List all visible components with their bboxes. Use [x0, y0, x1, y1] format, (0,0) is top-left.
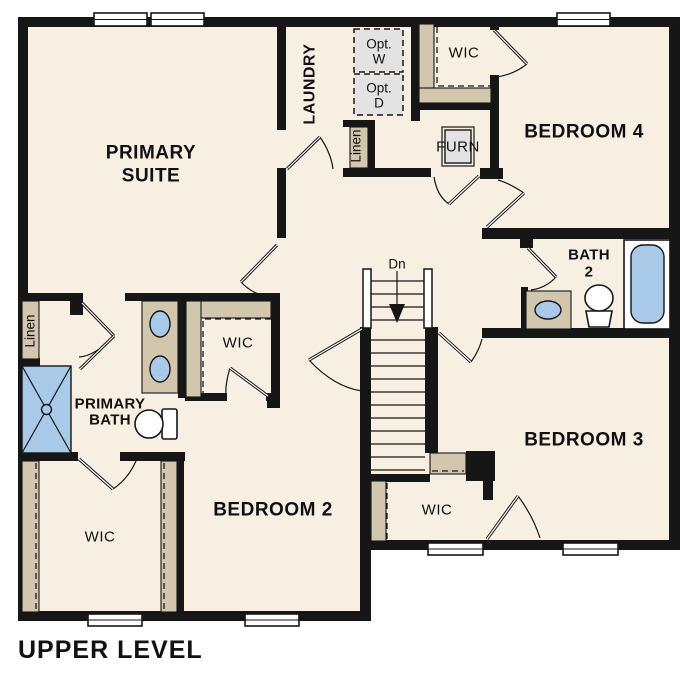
opt-dryer-label: Opt.	[366, 81, 392, 96]
stairs-direction-label: Dn	[388, 257, 405, 272]
window	[88, 614, 142, 626]
window	[245, 614, 299, 626]
closet-label-linen-hall: Linen	[349, 129, 364, 162]
room-label-bedroom-3: BEDROOM 3	[524, 430, 644, 451]
opt-dryer-label-line2: D	[374, 96, 384, 111]
room-label-primary-suite-line2: SUITE	[122, 166, 180, 187]
floor-area	[20, 20, 673, 617]
window	[94, 13, 147, 26]
window	[557, 13, 610, 26]
window	[563, 543, 618, 555]
page-title: UPPER LEVEL	[18, 636, 203, 664]
room-label-bath-2-line2: 2	[585, 264, 594, 281]
closet-label-wic-bedroom4: WIC	[449, 45, 480, 62]
window	[151, 13, 204, 26]
opt-washer-label: Opt.	[366, 37, 392, 52]
room-label-laundry: LAUNDRY	[302, 43, 319, 124]
room-label-bedroom-4: BEDROOM 4	[524, 122, 644, 143]
room-label-bedroom-2: BEDROOM 2	[213, 500, 333, 521]
floorplan-page: PRIMARY SUITE LAUNDRY Opt. W Opt. D WIC …	[0, 0, 687, 687]
bathtub-icon	[624, 240, 670, 329]
closet-label-wic-bedroom3: WIC	[422, 502, 453, 519]
room-label-primary-bath: PRIMARY	[75, 396, 146, 413]
toilet-icon	[135, 409, 177, 439]
room-label-bath-2: BATH	[568, 247, 610, 264]
opt-washer-label-line2: W	[373, 52, 386, 67]
bath2-vanity-sink-icon	[526, 291, 571, 329]
toilet-icon	[585, 285, 613, 327]
closet-label-wic-primary: WIC	[223, 335, 254, 352]
shower-icon	[22, 366, 71, 453]
room-label-primary-bath-line2: BATH	[89, 412, 131, 429]
floorplan-drawing: PRIMARY SUITE LAUNDRY Opt. W Opt. D WIC …	[0, 0, 687, 687]
room-label-primary-suite: PRIMARY	[106, 143, 196, 164]
closet-label-linen-bath: Linen	[23, 314, 38, 347]
closet-label-wic-bedroom2: WIC	[85, 529, 116, 546]
furnace-label: FURN	[436, 139, 480, 156]
window	[428, 543, 483, 555]
